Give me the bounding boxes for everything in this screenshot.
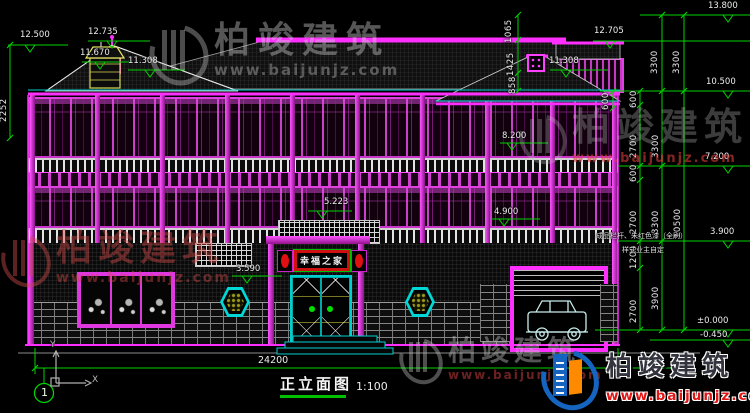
- door-leaf-left: [292, 277, 321, 343]
- dim-label: 3300: [652, 112, 661, 158]
- elevation-label: 13.800: [708, 2, 738, 11]
- column: [30, 95, 35, 243]
- window-pane: [112, 276, 143, 324]
- column: [160, 95, 165, 243]
- dim-label: 3300: [651, 36, 660, 74]
- lantern-right: [351, 250, 367, 272]
- dim-label: 2700: [630, 196, 639, 234]
- elevation-label: 11.308: [549, 57, 579, 66]
- entrance-plaque: 幸福之家: [293, 249, 351, 272]
- dim-label: 3900: [652, 270, 661, 310]
- garage-brick-right: [600, 284, 618, 342]
- plaque-text: 幸福之家: [300, 254, 344, 267]
- dim-label: 10500: [674, 188, 683, 238]
- column: [95, 95, 100, 243]
- elevation-label: 8.200: [502, 132, 526, 141]
- entrance-double-door: [290, 275, 352, 345]
- garage-brick-left: [480, 284, 510, 342]
- watermark-top: 柏竣建筑 www.baijunjz.com: [148, 18, 399, 82]
- brand-logo: 柏竣建筑 www.baijunjz.com: [540, 344, 750, 406]
- hexagon-window-grille: [226, 293, 244, 311]
- left-wing-roof: [46, 45, 238, 91]
- elevation-label: 11.308: [128, 57, 158, 66]
- elevation-label: 10.500: [706, 78, 736, 87]
- entrance-beam: [266, 236, 370, 244]
- dim-label: 2700: [630, 120, 639, 158]
- column: [485, 95, 490, 243]
- brand-logo-icon: [540, 344, 596, 406]
- dim-label: 2252: [0, 78, 9, 122]
- hexagon-window-grille: [411, 293, 429, 311]
- watermark-logo-icon: [148, 18, 206, 82]
- floor3-window-band: [28, 97, 618, 161]
- door-leaf-right: [321, 277, 350, 343]
- ucs-icon: [51, 351, 91, 386]
- elevation-label: 4.900: [494, 208, 518, 217]
- dim-label: 2700: [630, 283, 639, 323]
- elevation-label: 3.590: [236, 265, 260, 274]
- window-pane: [81, 276, 112, 324]
- drawing-title: 正立面图: [280, 377, 352, 392]
- brand-url: www.baijunjz.com: [606, 388, 750, 404]
- dim-label: 600: [630, 166, 639, 182]
- ucs-x-label: X: [92, 376, 98, 385]
- axis-bubble-number: 1: [41, 387, 48, 398]
- overall-width-dim: 24200: [258, 356, 288, 366]
- column: [612, 95, 617, 243]
- column: [550, 95, 555, 243]
- dim-label: 600: [602, 92, 611, 110]
- watermark-url: www.baijunjz.com: [214, 63, 399, 78]
- elevation-label: 7.200: [705, 153, 729, 162]
- elevation-label: 12.735: [88, 28, 118, 37]
- lantern-left: [277, 250, 293, 272]
- dim-label: 858: [509, 74, 518, 94]
- dim-label: 1065: [505, 17, 514, 43]
- lantern-icon: [281, 254, 289, 268]
- elevation-label: 12.500: [20, 31, 50, 40]
- elevation-label: 5.223: [324, 198, 348, 207]
- logo-building-blue: [553, 354, 567, 396]
- gable-ornament-left: [104, 57, 120, 73]
- dim-label: 600: [630, 92, 639, 108]
- porch-post: [268, 243, 274, 345]
- garage-door: [510, 266, 608, 352]
- feature-window: [77, 272, 175, 328]
- dim-label: 3300: [673, 36, 682, 74]
- watermark-brand: 柏竣建筑: [214, 23, 399, 59]
- elevation-label: -0.450: [700, 331, 727, 340]
- hexagon-window-inner: [223, 290, 247, 314]
- dim-label: 1425: [507, 46, 516, 76]
- window-pane: [142, 276, 171, 324]
- ucs-y-label: Y: [50, 341, 56, 350]
- gable-ornament-right: [528, 55, 544, 71]
- elevation-label: ±0.000: [697, 317, 728, 326]
- title-underline: [280, 395, 346, 398]
- lantern-icon: [355, 254, 363, 268]
- elevation-label: 11.670: [80, 49, 110, 58]
- elevation-label: 3.900: [710, 228, 734, 237]
- elevation-label: 12.705: [594, 27, 624, 36]
- cad-elevation-canvas: 幸福之家: [0, 0, 750, 413]
- logo-building-orange: [569, 359, 582, 395]
- hexagon-window-inner: [408, 290, 432, 314]
- brand-name: 柏竣建筑: [606, 346, 750, 383]
- roller-shutter: [514, 270, 604, 296]
- door-knob: [327, 306, 333, 312]
- left-wing-ridge-lines: [46, 45, 238, 91]
- door-knob: [309, 306, 315, 312]
- drawing-scale: 1:100: [356, 381, 388, 392]
- railing-note: 成品栏杆、朱红色漆（全刷）: [596, 233, 687, 240]
- column: [420, 95, 425, 243]
- dim-label: 3300: [652, 188, 661, 234]
- style-note: 样式业主自定: [622, 247, 664, 254]
- column: [225, 95, 230, 243]
- porch-post: [28, 243, 34, 345]
